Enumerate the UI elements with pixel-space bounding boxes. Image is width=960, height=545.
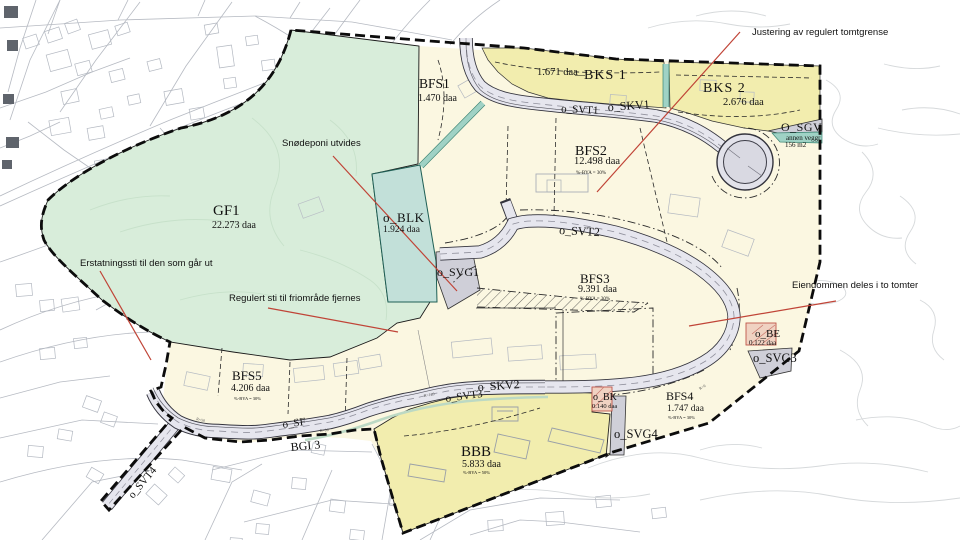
- svg-text:BKS 1: BKS 1: [584, 68, 627, 83]
- svg-text:2.676 daa: 2.676 daa: [723, 97, 764, 108]
- svg-text:12.498 daa: 12.498 daa: [574, 156, 620, 167]
- svg-text:o_SVT1: o_SVT1: [561, 103, 599, 117]
- svg-text:1.924 daa: 1.924 daa: [383, 225, 421, 235]
- svg-text:BKS 2: BKS 2: [703, 81, 746, 96]
- svg-text:1.470 daa: 1.470 daa: [418, 93, 457, 104]
- svg-text:Regulert sti til friområde fje: Regulert sti til friområde fjernes: [229, 293, 361, 304]
- svg-text:0.140 daa: 0.140 daa: [592, 403, 617, 410]
- svg-text:156 m2: 156 m2: [785, 141, 807, 149]
- svg-text:1.747 daa: 1.747 daa: [667, 404, 705, 414]
- svg-text:Erstatningssti til den som går: Erstatningssti til den som går ut: [80, 258, 213, 269]
- svg-text:%-BYA = 30%: %-BYA = 30%: [580, 297, 610, 302]
- svg-text:o_BLK: o_BLK: [383, 210, 425, 225]
- svg-text:o_SVT2: o_SVT2: [559, 223, 600, 239]
- svg-text:9.391 daa: 9.391 daa: [578, 284, 617, 295]
- svg-text:O_SGV: O_SGV: [781, 120, 822, 134]
- svg-text:Eiendommen deles i to tomter: Eiendommen deles i to tomter: [792, 280, 918, 291]
- svg-text:o_BK: o_BK: [593, 392, 618, 403]
- svg-text:%-BYA = 30%: %-BYA = 30%: [576, 171, 606, 176]
- svg-text:Justering av regulert tomtgren: Justering av regulert tomtgrense: [752, 27, 888, 38]
- svg-text:0.122 daa: 0.122 daa: [749, 339, 777, 347]
- svg-text:1.671 daa: 1.671 daa: [537, 67, 578, 78]
- svg-text:5.833 daa: 5.833 daa: [462, 459, 501, 470]
- svg-text:4.206 daa: 4.206 daa: [231, 383, 270, 394]
- svg-text:%-BYA = 50%: %-BYA = 50%: [463, 470, 490, 475]
- svg-text:%-BYA = 30%: %-BYA = 30%: [668, 415, 695, 420]
- svg-text:BFS1: BFS1: [419, 76, 450, 91]
- svg-text:22.273 daa: 22.273 daa: [212, 220, 256, 231]
- svg-text:Snødeponi utvides: Snødeponi utvides: [282, 138, 361, 149]
- svg-text:%-BYA = 30%: %-BYA = 30%: [234, 396, 261, 401]
- svg-text:o_SKV2: o_SKV2: [477, 377, 520, 394]
- svg-text:BFS4: BFS4: [666, 389, 693, 403]
- svg-text:BBB: BBB: [461, 444, 491, 460]
- svg-text:o_SVG3: o_SVG3: [753, 351, 797, 365]
- svg-text:GF1: GF1: [213, 203, 240, 219]
- svg-text:BFS5: BFS5: [232, 368, 262, 383]
- svg-text:BGI 3: BGI 3: [290, 437, 321, 454]
- svg-text:o_SVG1: o_SVG1: [437, 265, 479, 279]
- svg-text:o_SKV1: o_SKV1: [607, 97, 650, 114]
- svg-text:R=90: R=90: [320, 427, 329, 433]
- svg-text:o_SVG4: o_SVG4: [614, 427, 659, 441]
